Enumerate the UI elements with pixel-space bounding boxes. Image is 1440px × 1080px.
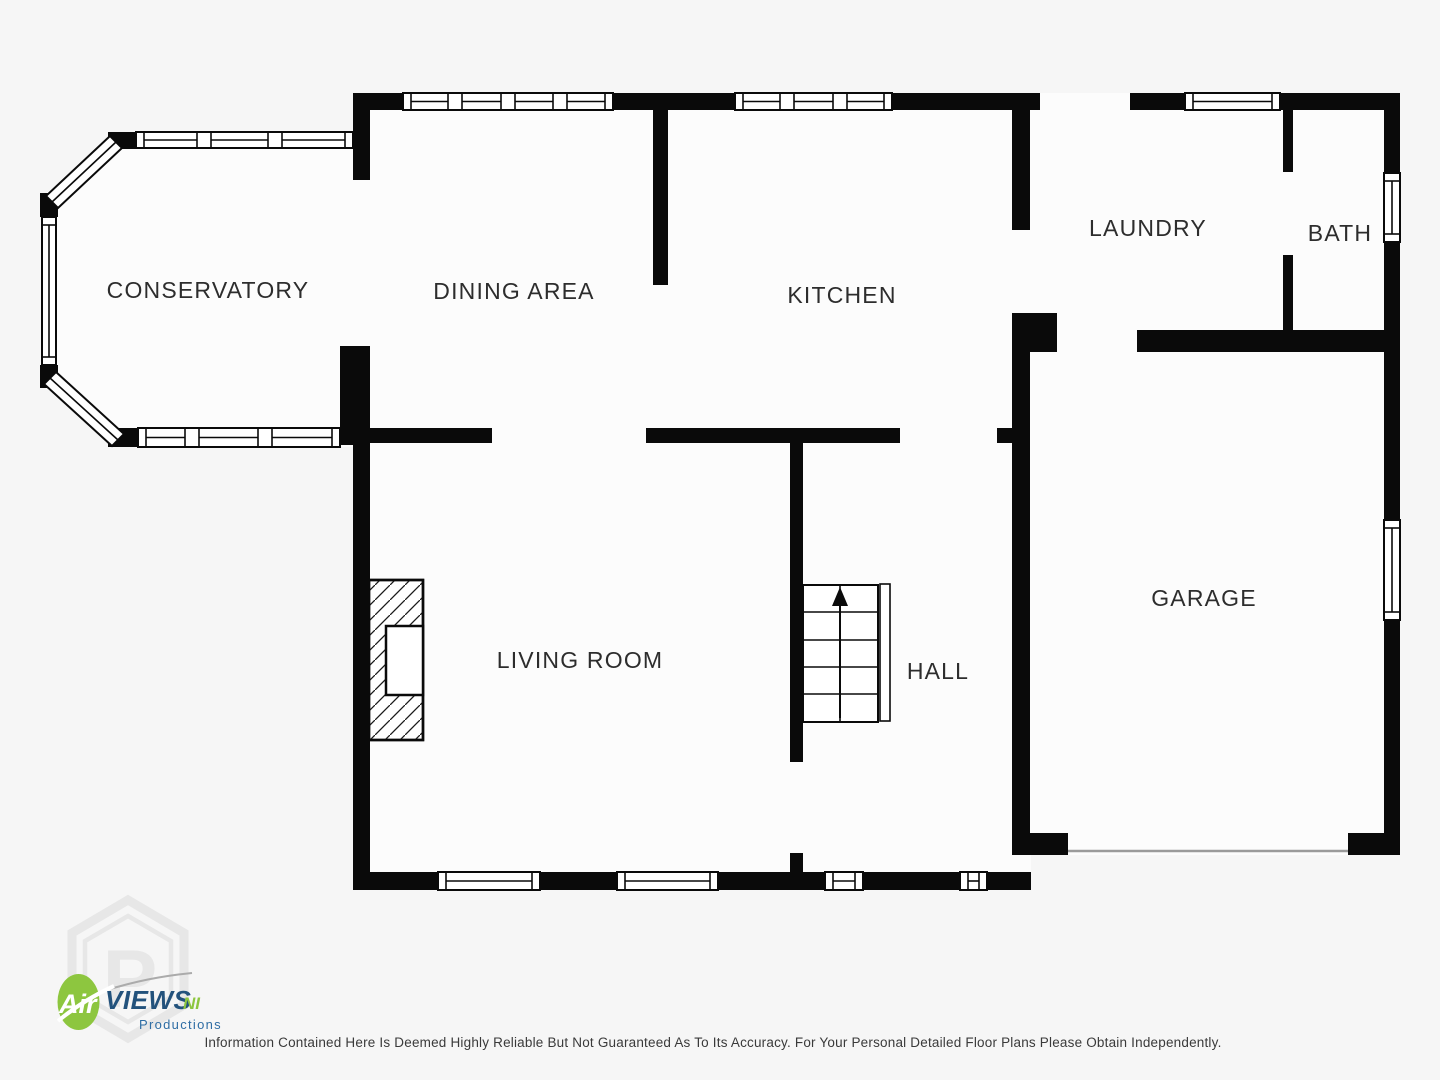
floorplan-drawing: P <box>0 0 1440 1080</box>
right-wing-floor <box>1012 93 1400 855</box>
main-house-floor <box>353 93 1031 890</box>
label-kitchen: KITCHEN <box>787 282 896 308</box>
window <box>42 217 56 365</box>
stair-handrail <box>880 584 890 721</box>
disclaimer-text: Information Contained Here Is Deemed Hig… <box>204 1035 1221 1050</box>
window <box>403 93 613 110</box>
logo-text-views: VIEWS <box>105 985 191 1015</box>
window <box>138 428 340 447</box>
staircase <box>803 584 890 722</box>
label-laundry: LAUNDRY <box>1089 215 1207 241</box>
window <box>825 872 863 890</box>
window <box>735 93 892 110</box>
window <box>136 132 353 148</box>
label-bath: BATH <box>1308 220 1372 246</box>
window <box>960 872 987 890</box>
fireplace <box>369 580 423 740</box>
label-living-room: LIVING ROOM <box>497 647 664 673</box>
label-hall: HALL <box>907 658 969 684</box>
label-garage: GARAGE <box>1151 585 1257 611</box>
label-dining-area: DINING AREA <box>433 278 594 304</box>
logo-text-air: Air <box>58 989 98 1019</box>
window <box>1185 93 1280 110</box>
label-conservatory: CONSERVATORY <box>107 277 310 303</box>
floorplan-page: P <box>0 0 1440 1080</box>
window <box>1384 520 1400 620</box>
logo-text-ni: NI <box>183 994 201 1013</box>
logo-text-productions: Productions <box>139 1017 222 1032</box>
window <box>617 872 718 890</box>
window <box>438 872 540 890</box>
window <box>1384 173 1400 242</box>
